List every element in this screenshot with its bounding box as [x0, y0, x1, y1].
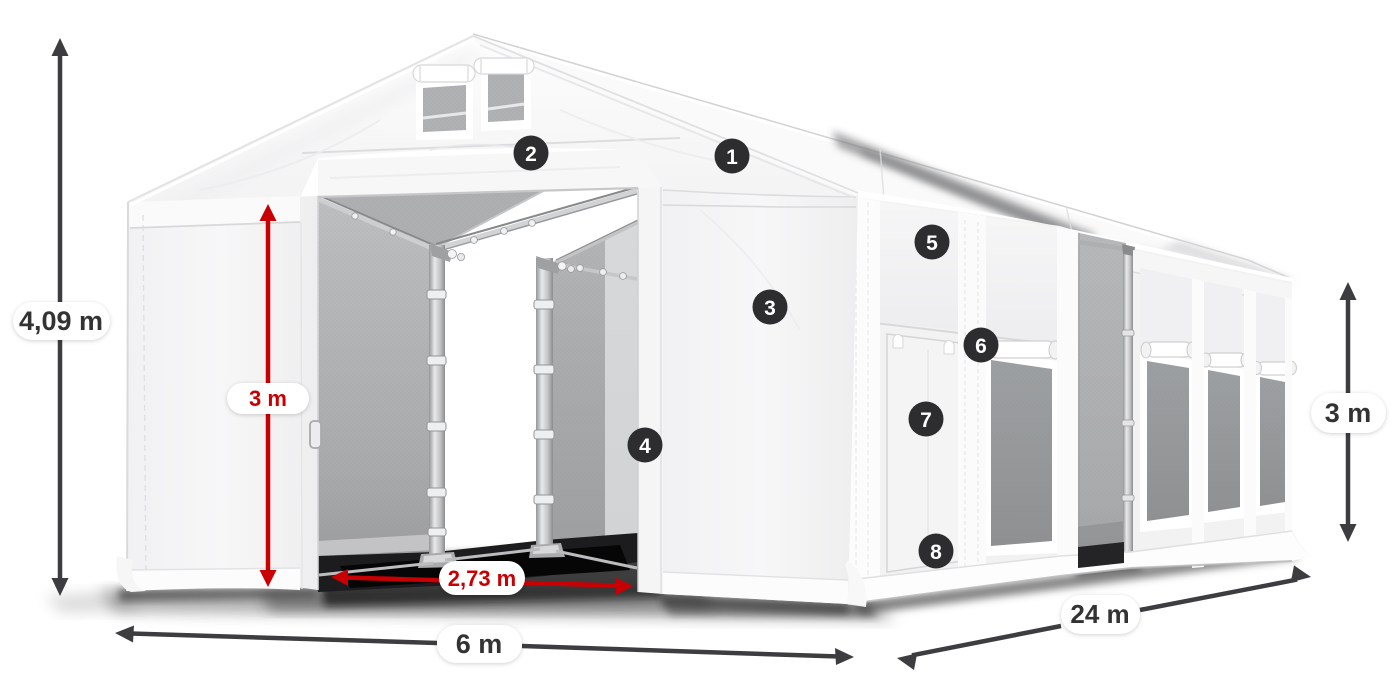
svg-text:8: 8	[930, 541, 942, 564]
svg-text:6: 6	[975, 335, 987, 358]
svg-text:3 m: 3 m	[1325, 398, 1372, 428]
svg-text:5: 5	[926, 232, 938, 255]
svg-text:4,09 m: 4,09 m	[19, 306, 103, 336]
svg-text:24 m: 24 m	[1070, 599, 1129, 629]
svg-text:7: 7	[920, 409, 932, 432]
svg-text:1: 1	[726, 146, 738, 169]
svg-text:2,73 m: 2,73 m	[448, 566, 517, 591]
svg-text:3: 3	[764, 297, 776, 320]
svg-text:2: 2	[525, 143, 537, 166]
svg-text:3 m: 3 m	[249, 386, 287, 411]
svg-text:4: 4	[639, 435, 651, 458]
svg-text:6 m: 6 m	[456, 629, 503, 659]
